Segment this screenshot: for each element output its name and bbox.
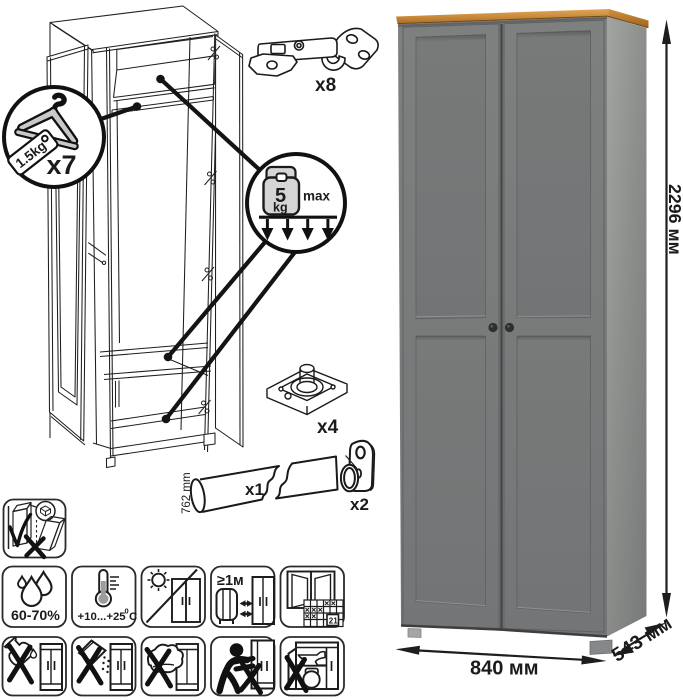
svg-text:x8: x8 — [315, 75, 336, 96]
svg-text:C: C — [129, 611, 137, 623]
svg-text:x1: x1 — [245, 480, 264, 499]
svg-text:≥1м: ≥1м — [217, 573, 244, 589]
svg-text:762 mm: 762 mm — [181, 472, 193, 514]
svg-text:kg: kg — [273, 201, 288, 215]
svg-text:x7: x7 — [47, 150, 77, 180]
svg-text:x2: x2 — [350, 495, 369, 514]
svg-text:max: max — [303, 189, 331, 204]
svg-text:840 мм: 840 мм — [470, 658, 539, 680]
svg-text:2296 мм: 2296 мм — [665, 184, 683, 255]
svg-text:x4: x4 — [317, 417, 339, 438]
svg-text:60-70%: 60-70% — [11, 608, 60, 624]
svg-text:+10...+25: +10...+25 — [78, 611, 127, 623]
svg-text:21: 21 — [329, 617, 338, 626]
